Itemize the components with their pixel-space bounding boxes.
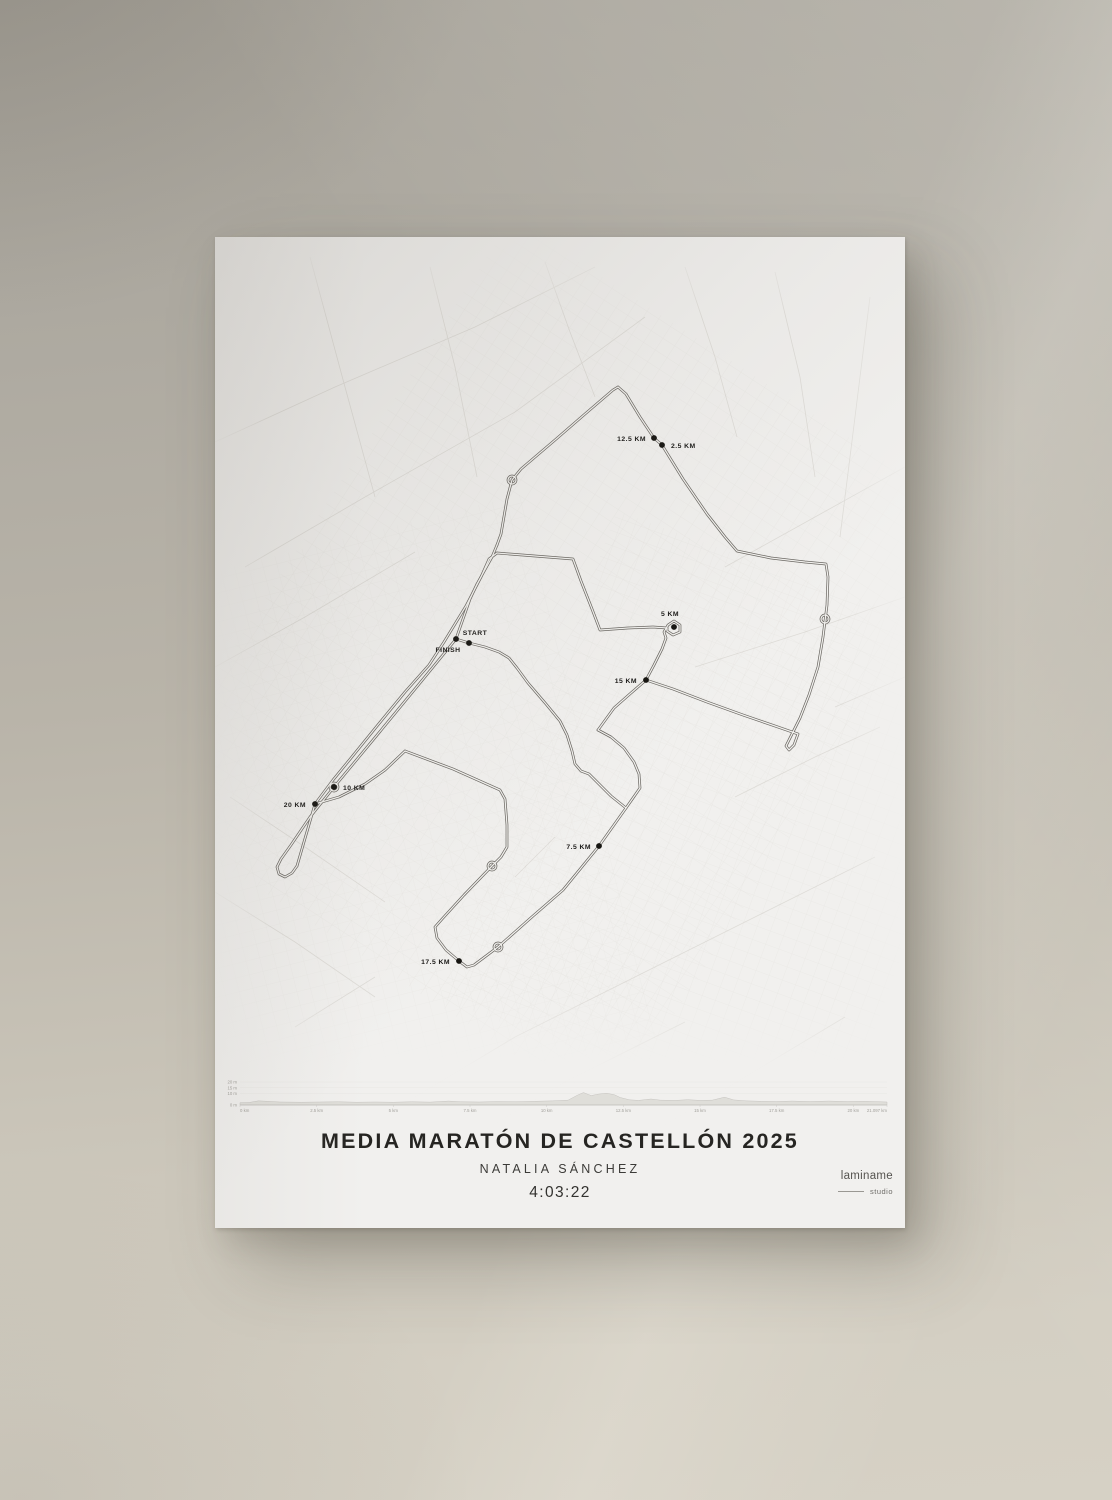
elevation-profile-chart: 20 m15 m10 m0 m0 km2.5 km5 km7.5 km10 km… bbox=[215, 1077, 905, 1135]
brand-rule-line bbox=[838, 1191, 864, 1192]
svg-text:20 KM: 20 KM bbox=[284, 802, 306, 809]
svg-text:21.097 km: 21.097 km bbox=[867, 1108, 887, 1113]
svg-text:5 km: 5 km bbox=[389, 1108, 399, 1113]
svg-text:2.5 KM: 2.5 KM bbox=[671, 443, 696, 450]
svg-text:20 m: 20 m bbox=[227, 1080, 237, 1085]
svg-text:7.5 km: 7.5 km bbox=[464, 1108, 477, 1113]
map-fade-top bbox=[215, 237, 905, 317]
svg-text:17.5 KM: 17.5 KM bbox=[421, 959, 450, 966]
brand-name: laminame bbox=[838, 1171, 893, 1183]
svg-text:12.5 KM: 12.5 KM bbox=[617, 436, 646, 443]
svg-text:15 m: 15 m bbox=[227, 1085, 237, 1090]
svg-text:START: START bbox=[463, 630, 488, 637]
finish-time: 4:03:22 bbox=[215, 1184, 905, 1202]
svg-text:7.5 KM: 7.5 KM bbox=[566, 844, 591, 851]
svg-text:0 km: 0 km bbox=[240, 1108, 250, 1113]
svg-text:FINISH: FINISH bbox=[436, 647, 461, 654]
brand-studio-label: studio bbox=[870, 1188, 893, 1196]
product-photo: { "poster": { "title": "MEDIA MARATÓN DE… bbox=[0, 0, 1112, 1500]
title-block: MEDIA MARATÓN DE CASTELLÓN 2025 NATALIA … bbox=[215, 1130, 905, 1202]
runner-name: NATALIA SÁNCHEZ bbox=[215, 1162, 905, 1176]
svg-text:15 km: 15 km bbox=[694, 1108, 706, 1113]
svg-text:17.5 km: 17.5 km bbox=[769, 1108, 785, 1113]
svg-text:5 KM: 5 KM bbox=[661, 611, 679, 618]
svg-text:20 km: 20 km bbox=[848, 1108, 860, 1113]
svg-text:0 m: 0 m bbox=[230, 1103, 238, 1108]
poster-title: MEDIA MARATÓN DE CASTELLÓN 2025 bbox=[215, 1130, 905, 1153]
race-map-poster: STARTFINISH2.5 KM5 KM7.5 KM10 KM12.5 KM1… bbox=[215, 237, 905, 1228]
brand-subline: studio bbox=[838, 1188, 893, 1196]
svg-text:12.5 km: 12.5 km bbox=[616, 1108, 632, 1113]
svg-text:10 KM: 10 KM bbox=[343, 785, 365, 792]
svg-text:10 m: 10 m bbox=[227, 1091, 237, 1096]
brand-logo: laminame studio bbox=[838, 1171, 893, 1195]
svg-text:2.5 km: 2.5 km bbox=[310, 1108, 323, 1113]
svg-text:15 KM: 15 KM bbox=[615, 678, 637, 685]
svg-text:10 km: 10 km bbox=[541, 1108, 553, 1113]
